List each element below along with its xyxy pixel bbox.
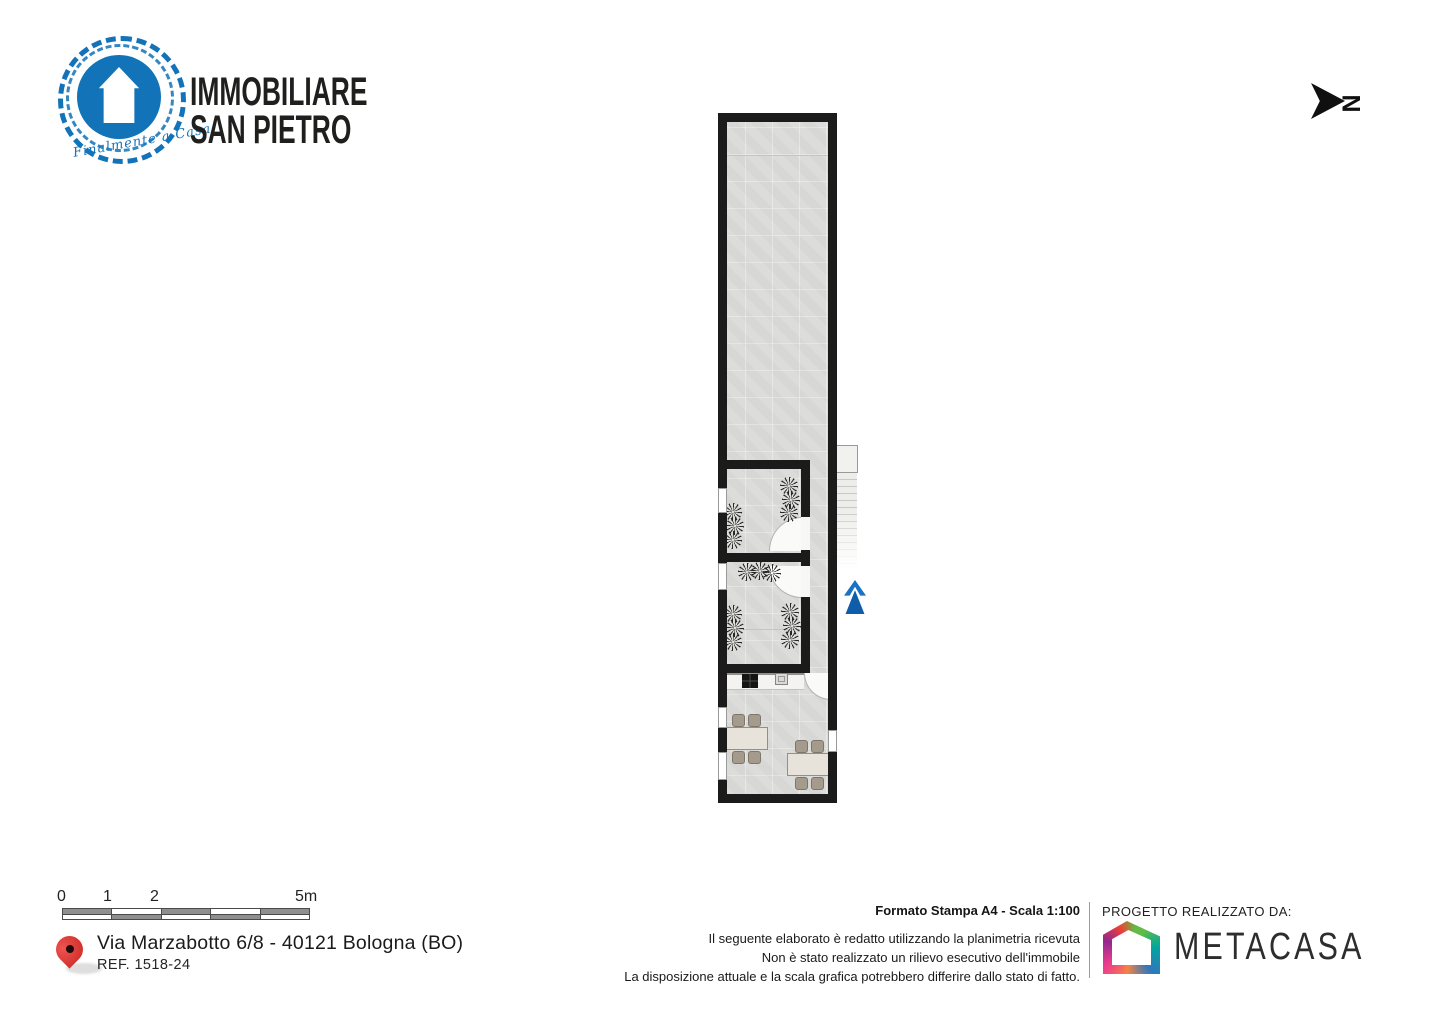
property-reference: REF. 1518-24	[97, 957, 190, 973]
scale-bar	[62, 908, 310, 920]
house-icon	[95, 67, 143, 123]
door-opening-room2	[801, 566, 810, 597]
scale-label-2: 2	[150, 888, 159, 906]
north-label: N	[1336, 94, 1365, 112]
print-format: Formato Stampa A4 - Scala 1:100	[520, 903, 1080, 918]
window-room1	[718, 488, 727, 513]
disclaimer-line-1: Il seguente elaborato è redatto utilizza…	[520, 929, 1080, 948]
window-dining-2	[718, 752, 727, 780]
map-pin-icon	[52, 934, 96, 980]
staircase	[836, 473, 857, 573]
credit-label: PROGETTO REALIZZATO DA:	[1102, 904, 1292, 919]
metacasa-logo-inner	[1112, 930, 1151, 965]
window-dining-right	[828, 730, 837, 752]
door-opening-room1	[801, 517, 810, 550]
agency-name-line2: SAN PIETRO	[190, 108, 351, 153]
stair-landing	[835, 445, 858, 473]
floorplan	[718, 113, 837, 803]
entrance-arrow-icon	[844, 580, 866, 614]
print-info: Formato Stampa A4 - Scala 1:100 Il segue…	[520, 903, 1080, 986]
footer-divider	[1089, 902, 1090, 978]
disclaimer-line-2: Non è stato realizzato un rilievo esecut…	[520, 948, 1080, 967]
window-room2	[718, 563, 727, 590]
property-address: Via Marzabotto 6/8 - 40121 Bologna (BO)	[97, 932, 463, 955]
window-dining-1	[718, 707, 727, 728]
scale-bar-row-bottom	[62, 914, 310, 920]
outer-wall	[718, 113, 837, 803]
scale-label-5m: 5m	[295, 888, 317, 906]
metacasa-wordmark: METACASA	[1174, 926, 1365, 969]
scale-label-1: 1	[103, 888, 112, 906]
agency-logo-icon	[77, 55, 161, 139]
floorplan-document: Finalmente a Casa IMMOBILIARE SAN PIETRO…	[0, 0, 1440, 1017]
pin-dot	[66, 945, 74, 953]
metacasa-logo-icon	[1103, 921, 1160, 974]
disclaimer-line-3: La disposizione attuale e la scala grafi…	[520, 967, 1080, 986]
scale-label-0: 0	[57, 888, 66, 906]
scale-bar-row-top	[62, 908, 310, 915]
